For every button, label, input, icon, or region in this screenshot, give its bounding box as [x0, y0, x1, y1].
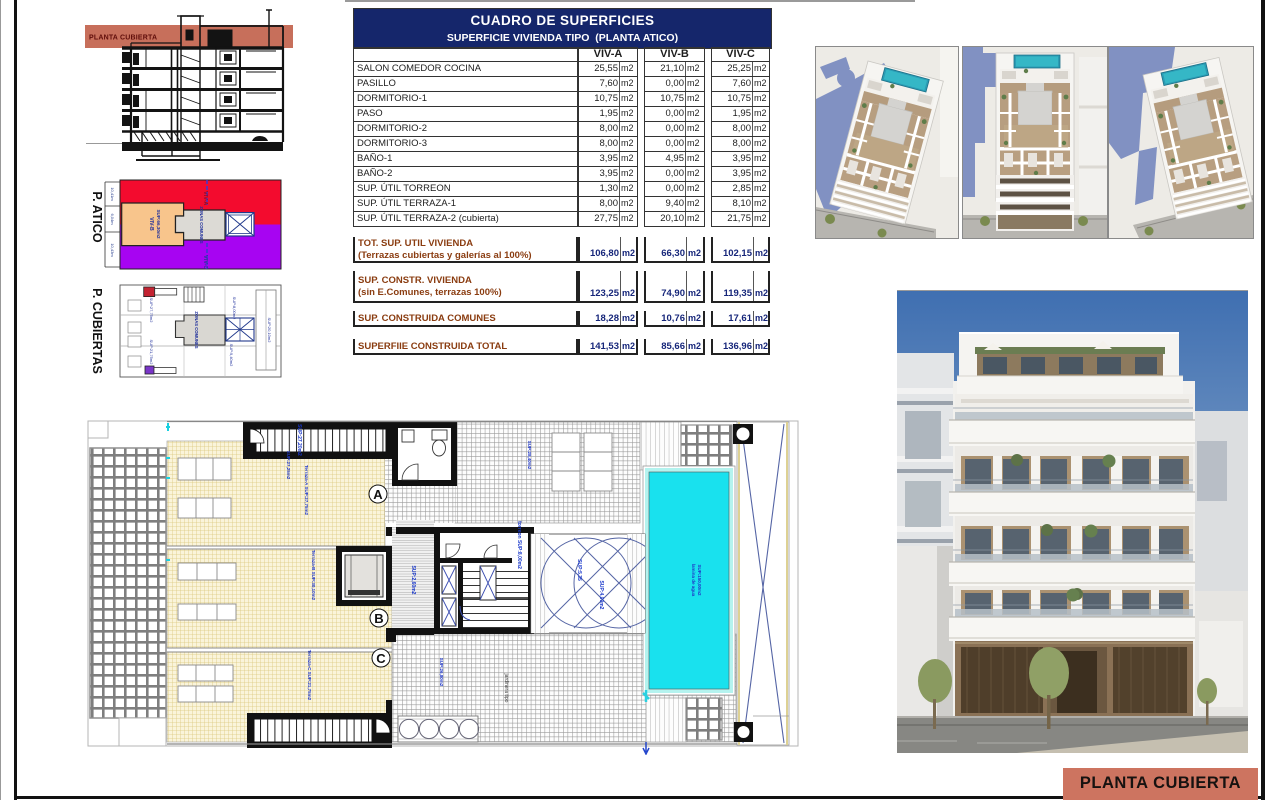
svg-text:SUP:9,40m2: SUP:9,40m2 — [229, 344, 234, 367]
svg-text:torreon SUP:8,00m2: torreon SUP:8,00m2 — [516, 521, 522, 569]
svg-text:SUP:21,75m2: SUP:21,75m2 — [149, 340, 154, 366]
svg-text:6,04m: 6,04m — [110, 213, 115, 225]
svg-text:A: A — [373, 487, 383, 502]
svg-text:P. CUBIERTAS: P. CUBIERTAS — [90, 288, 104, 374]
svg-text:SUP:2,60m2: SUP:2,60m2 — [410, 566, 416, 595]
svg-text:ZONAS COMUNES: ZONAS COMUNES — [194, 311, 199, 348]
svg-text:VIV-C: VIV-C — [202, 255, 208, 269]
svg-text:lamina de agua: lamina de agua — [691, 564, 696, 597]
svg-text:B: B — [374, 611, 383, 626]
svg-text:SUP:26,80m2: SUP:26,80m2 — [439, 658, 444, 687]
svg-text:VIV-A: VIV-A — [202, 191, 208, 205]
svg-text:Terraza-B SUP:30,10m2: Terraza-B SUP:30,10m2 — [311, 550, 316, 601]
svg-text:SUP:27,20m2: SUP:27,20m2 — [296, 424, 302, 456]
svg-text:jardinera tipo: jardinera tipo — [503, 673, 509, 703]
svg-text:SUP:20,10m2: SUP:20,10m2 — [267, 318, 272, 344]
svg-text:C: C — [376, 651, 386, 666]
svg-text:ZONAS COMUNES: ZONAS COMUNES — [199, 206, 204, 243]
svg-text:Terraza-C SUP:21,75m2: Terraza-C SUP:21,75m2 — [307, 650, 312, 701]
svg-text:Terraza-A SUP:27,75m2: Terraza-A SUP:27,75m2 — [304, 465, 309, 516]
svg-text:SUP:27,75m2: SUP:27,75m2 — [149, 298, 154, 324]
svg-text:10,41m: 10,41m — [110, 187, 115, 201]
svg-text:SUP:4,00m2: SUP:4,00m2 — [598, 581, 604, 610]
svg-text:SUP:28,40m2: SUP:28,40m2 — [527, 441, 532, 470]
svg-text:VIV-B: VIV-B — [148, 217, 154, 231]
svg-text:SUP:150,00m2: SUP:150,00m2 — [697, 564, 702, 596]
svg-text:10,43m: 10,43m — [110, 243, 115, 257]
svg-text:PLANTA CUBIERTA: PLANTA CUBIERTA — [89, 35, 157, 42]
svg-text:SUP:5,35: SUP:5,35 — [576, 559, 582, 581]
svg-text:SUP:8,00m2: SUP:8,00m2 — [232, 297, 237, 320]
svg-text:SUP:27,25m2: SUP:27,25m2 — [286, 451, 291, 480]
svg-text:P. ATICO: P. ATICO — [90, 191, 104, 242]
svg-text:SUP:66,30m2: SUP:66,30m2 — [156, 209, 161, 239]
